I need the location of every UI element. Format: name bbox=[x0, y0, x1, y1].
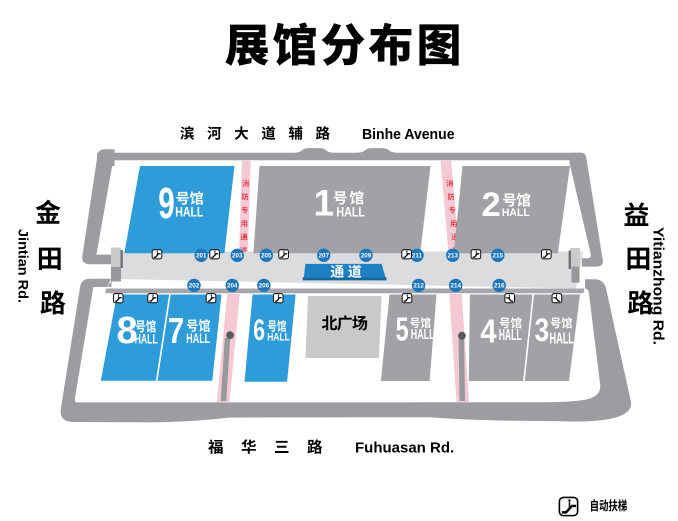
svg-text:7: 7 bbox=[168, 310, 185, 351]
svg-text:209: 209 bbox=[361, 253, 372, 260]
svg-text:214: 214 bbox=[450, 283, 461, 290]
svg-text:216: 216 bbox=[494, 283, 505, 290]
svg-text:HALL: HALL bbox=[267, 332, 290, 344]
svg-text:205: 205 bbox=[261, 253, 272, 260]
svg-text:5: 5 bbox=[396, 310, 409, 347]
svg-text:Yitianzhong Rd.: Yitianzhong Rd. bbox=[650, 227, 667, 345]
svg-text:206: 206 bbox=[259, 283, 270, 290]
svg-text:211: 211 bbox=[412, 253, 423, 260]
svg-text:HALL: HALL bbox=[550, 331, 575, 348]
svg-text:203: 203 bbox=[232, 253, 243, 260]
svg-text:215: 215 bbox=[493, 253, 504, 260]
svg-text:2: 2 bbox=[482, 186, 501, 224]
svg-text:HALL: HALL bbox=[175, 205, 203, 220]
svg-text:9: 9 bbox=[158, 180, 175, 228]
svg-text:HALL: HALL bbox=[336, 204, 365, 219]
svg-text:HALL: HALL bbox=[499, 327, 522, 344]
svg-text:202: 202 bbox=[189, 283, 200, 290]
svg-text:212: 212 bbox=[413, 283, 424, 290]
svg-text:201: 201 bbox=[196, 253, 207, 260]
svg-text:Fuhuasan Rd.: Fuhuasan Rd. bbox=[355, 440, 454, 457]
svg-text:HALL: HALL bbox=[502, 207, 530, 219]
svg-text:Binhe Avenue: Binhe Avenue bbox=[362, 126, 455, 143]
svg-text:HALL: HALL bbox=[135, 331, 158, 346]
svg-text:HALL: HALL bbox=[186, 331, 210, 346]
svg-text:Jintian Rd.: Jintian Rd. bbox=[16, 229, 31, 303]
svg-text:204: 204 bbox=[227, 283, 238, 290]
svg-text:6: 6 bbox=[253, 314, 265, 347]
svg-text:4: 4 bbox=[480, 314, 497, 351]
svg-text:3: 3 bbox=[535, 312, 550, 348]
svg-text:HALL: HALL bbox=[411, 327, 435, 343]
svg-text:213: 213 bbox=[447, 253, 458, 260]
svg-text:207: 207 bbox=[318, 253, 329, 260]
svg-text:1: 1 bbox=[314, 183, 335, 224]
